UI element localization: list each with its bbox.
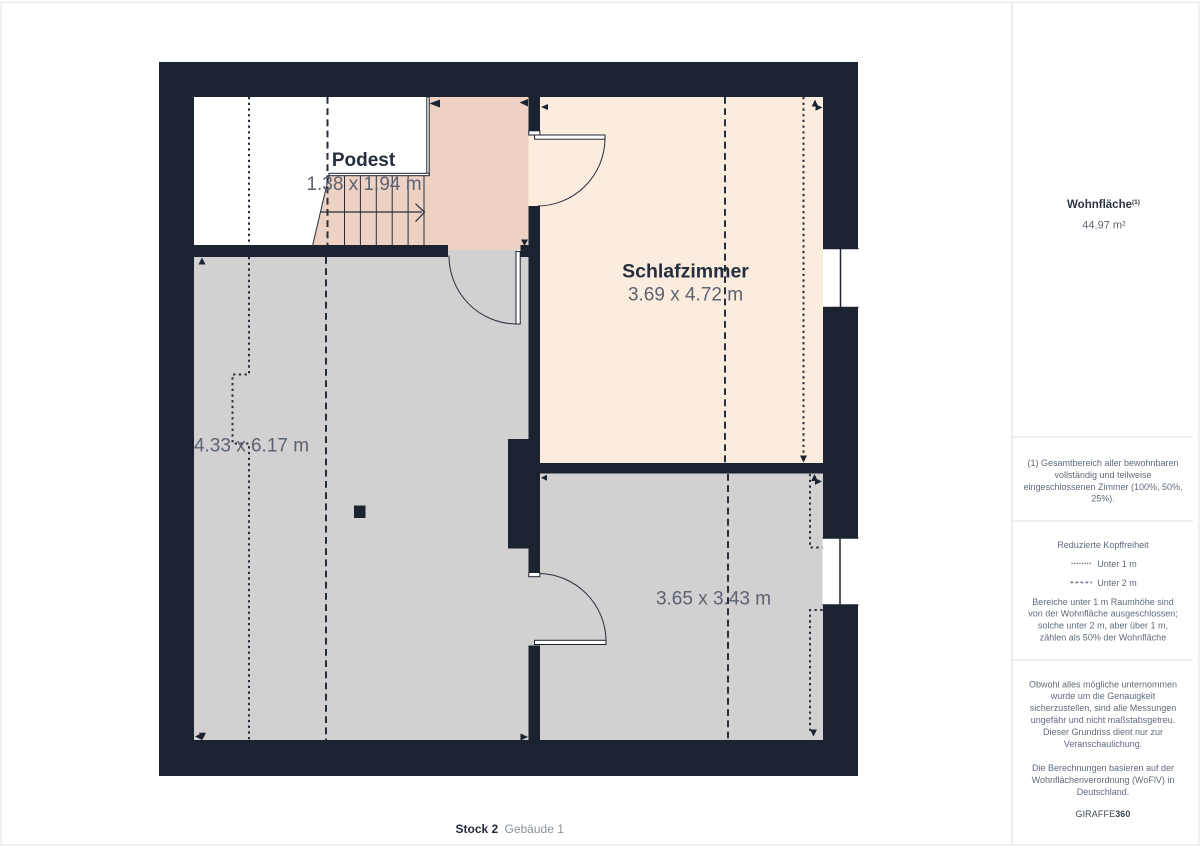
svg-text:Wohnfläche(1): Wohnfläche(1) <box>1067 199 1140 211</box>
svg-text:Veranschaulichung.: Veranschaulichung. <box>1064 739 1143 749</box>
svg-text:solche unter 2 m, aber über 1: solche unter 2 m, aber über 1 m, <box>1038 621 1168 631</box>
svg-text:3.69 x 4.72 m: 3.69 x 4.72 m <box>628 285 743 306</box>
svg-text:wurde um die Genauigkeit: wurde um die Genauigkeit <box>1050 691 1156 701</box>
svg-text:Stock 2: Stock 2 <box>456 822 499 836</box>
svg-text:1.38 x 1.94 m: 1.38 x 1.94 m <box>306 174 421 195</box>
svg-text:vollständig und teilweise: vollständig und teilweise <box>1054 470 1151 480</box>
svg-text:Unter 2 m: Unter 2 m <box>1097 578 1137 588</box>
svg-text:4.33 x 6.17 m: 4.33 x 6.17 m <box>194 436 309 457</box>
svg-text:zählen als 50% der Wohnfläche: zählen als 50% der Wohnfläche <box>1040 633 1166 643</box>
svg-text:ungefähr und nicht maßstabsget: ungefähr und nicht maßstabsgetreu. <box>1031 715 1176 725</box>
svg-text:GIRAFFE360: GIRAFFE360 <box>1075 809 1130 819</box>
svg-text:Bereiche unter 1 m Raumhöhe si: Bereiche unter 1 m Raumhöhe sind <box>1032 597 1174 607</box>
svg-text:(1) Gesamtbereich aller bewohn: (1) Gesamtbereich aller bewohnbaren <box>1027 458 1178 468</box>
svg-text:Reduzierte Kopffreiheit: Reduzierte Kopffreiheit <box>1057 540 1149 550</box>
svg-text:Obwohl alles mögliche unternom: Obwohl alles mögliche unternommen <box>1029 680 1177 690</box>
svg-text:Gebäude 1: Gebäude 1 <box>505 822 565 836</box>
svg-text:von der Wohnfläche ausgeschlos: von der Wohnfläche ausgeschlossen; <box>1028 609 1177 619</box>
svg-text:Unter 1 m: Unter 1 m <box>1097 559 1137 569</box>
svg-text:44.97 m²: 44.97 m² <box>1082 220 1126 232</box>
svg-text:Die Berechnungen basieren auf: Die Berechnungen basieren auf der <box>1032 763 1174 773</box>
svg-text:Deutschland.: Deutschland. <box>1077 787 1130 797</box>
svg-text:sicherzustellen, sind alle Mes: sicherzustellen, sind alle Messungen <box>1030 703 1177 713</box>
svg-text:Podest: Podest <box>332 150 396 171</box>
svg-text:Schlafzimmer: Schlafzimmer <box>622 261 749 283</box>
svg-text:3.65 x 3.43 m: 3.65 x 3.43 m <box>656 589 771 610</box>
svg-text:25%).: 25%). <box>1091 494 1115 504</box>
svg-text:Wohnflächenverordnung (WoFlV): Wohnflächenverordnung (WoFlV) in <box>1032 775 1175 785</box>
svg-text:Dieser Grundriss dient nur zur: Dieser Grundriss dient nur zur <box>1043 727 1163 737</box>
svg-text:eingeschlossenen Zimmer (100%,: eingeschlossenen Zimmer (100%, 50%, <box>1023 482 1182 492</box>
